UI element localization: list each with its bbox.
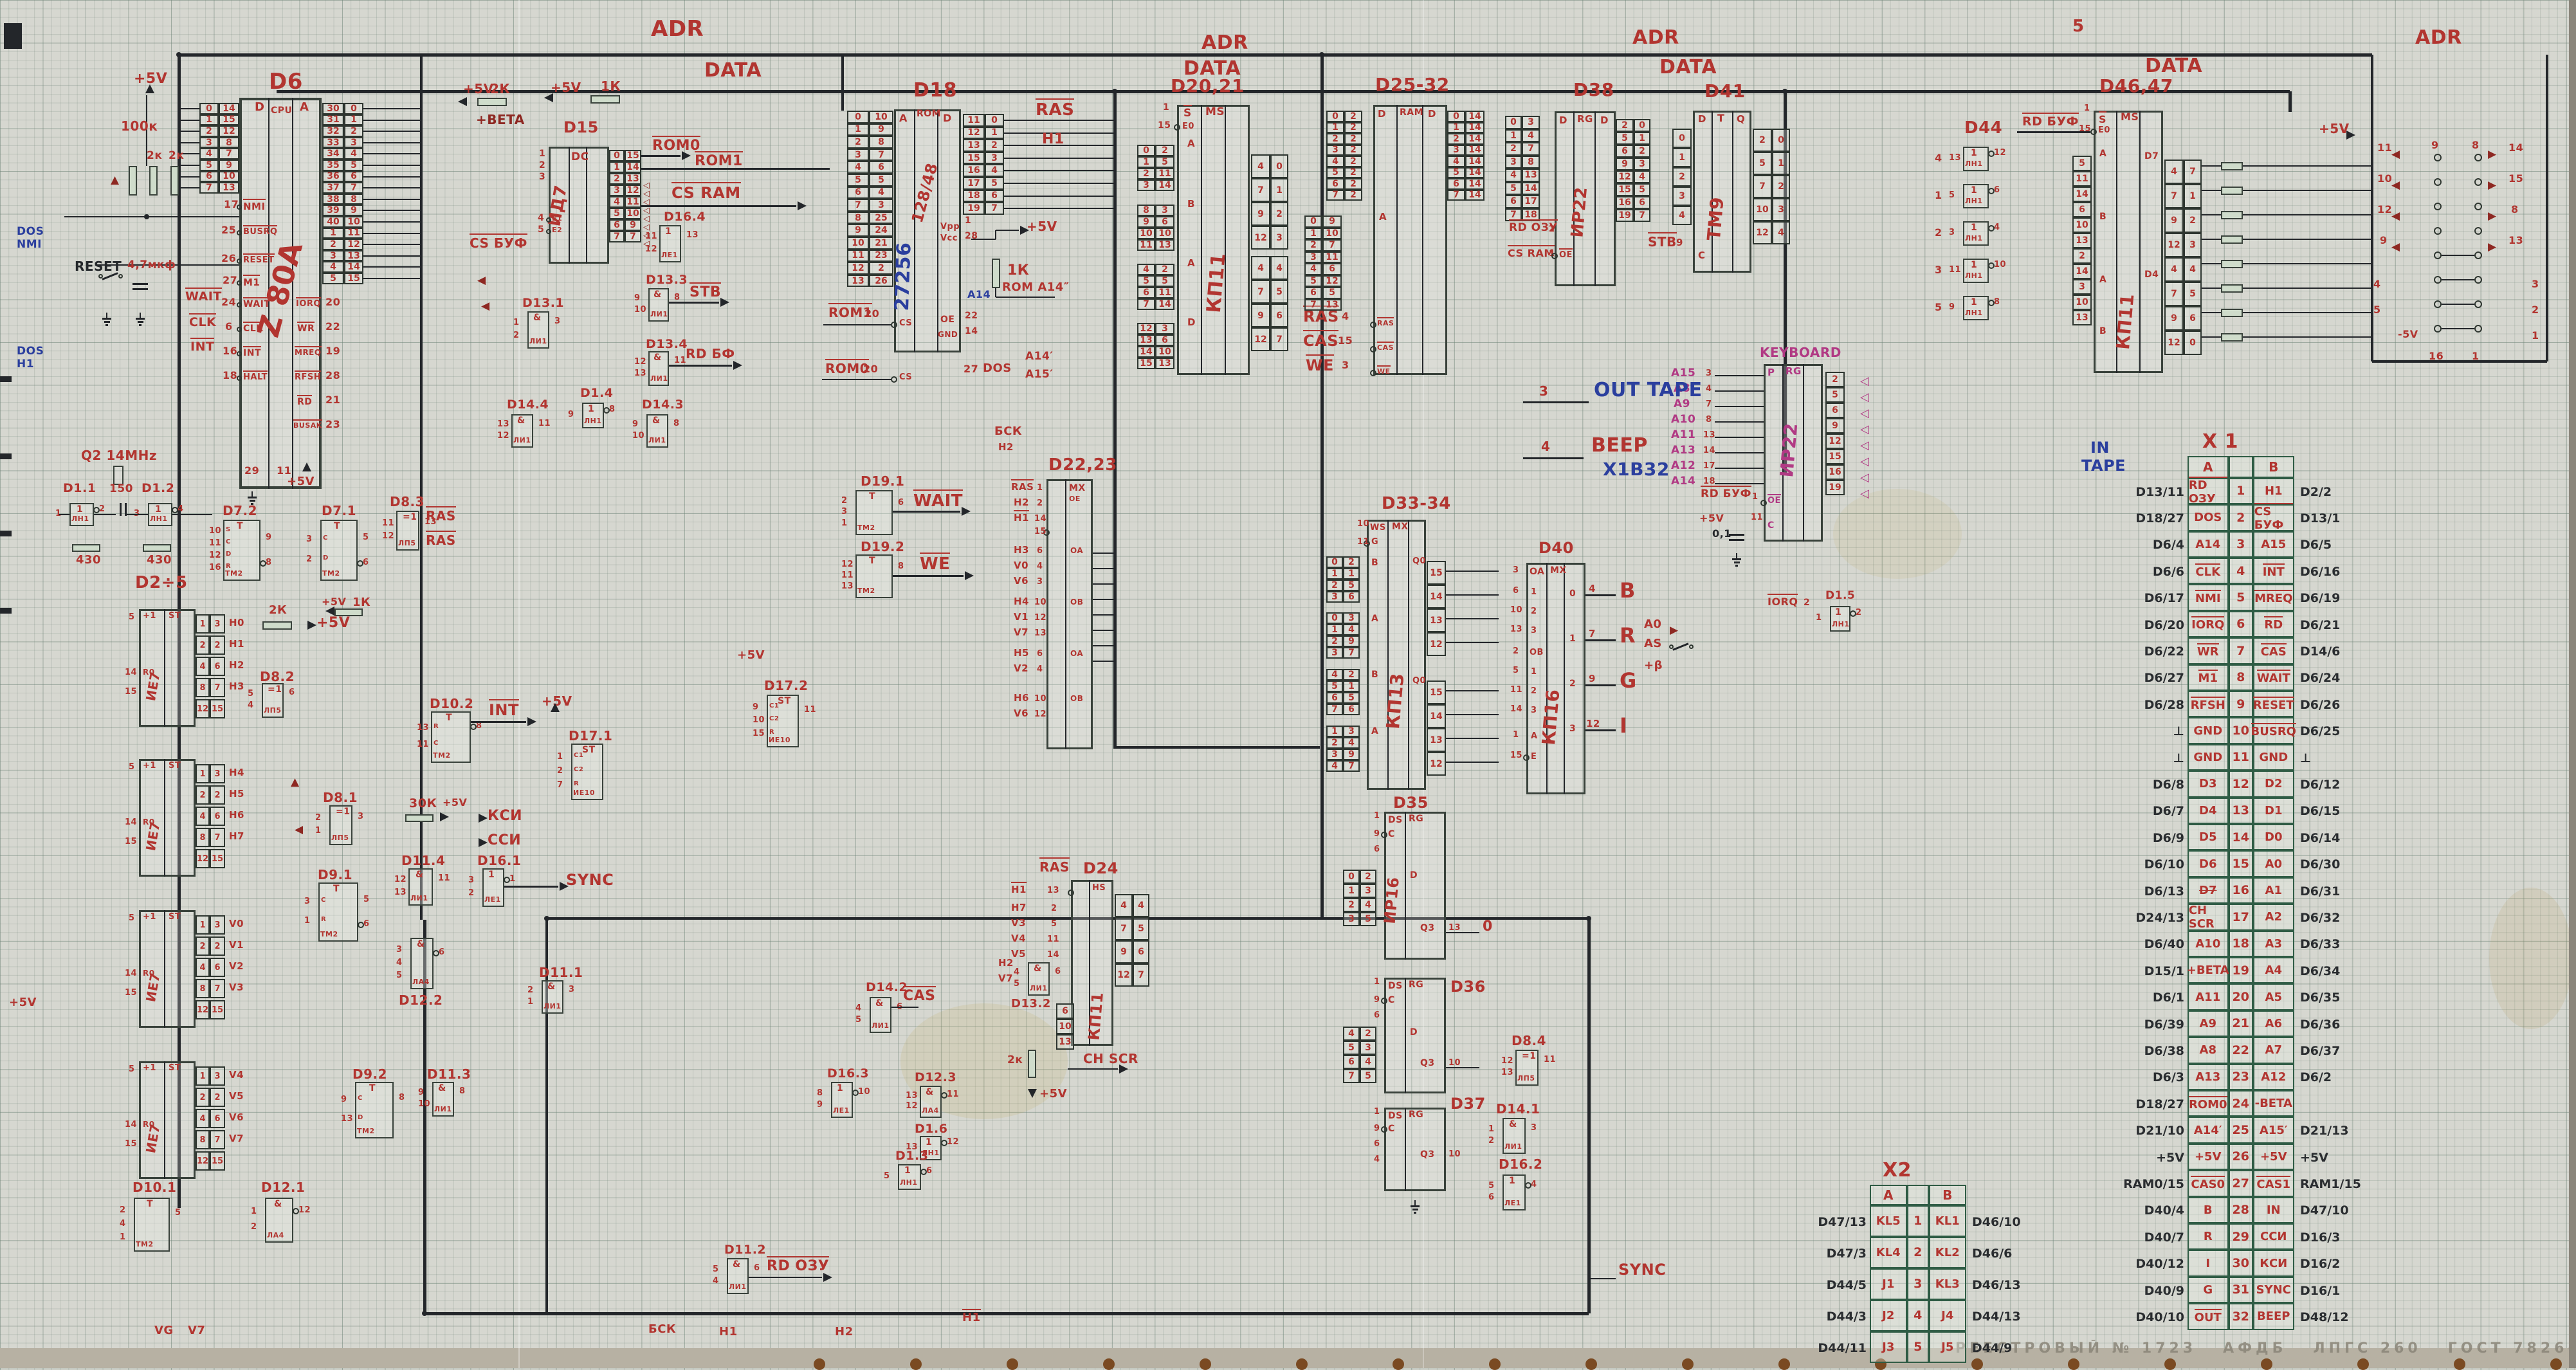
wire-segment: [64, 216, 239, 217]
pin-cell: 2: [1505, 142, 1522, 156]
connector-table-x1-ref-left: D18/27: [2128, 505, 2184, 531]
junction-dot: [1586, 916, 1591, 921]
arrowhead: [145, 84, 154, 93]
text-label: D8.4: [1512, 1034, 1546, 1047]
pin-cell: 12: [196, 699, 210, 718]
pin-cell: 5: [1326, 167, 1344, 179]
wire-segment: [1715, 406, 1764, 407]
pin-cell: 9: [1616, 158, 1634, 170]
wire-segment: [937, 109, 938, 352]
text-label: БСК: [648, 1324, 676, 1335]
pin-cell: 5: [1447, 167, 1465, 179]
pin-cell: 3: [1360, 884, 1376, 898]
pin-cell: 5: [847, 174, 869, 187]
gate-chip-type: ТМ2: [357, 1128, 375, 1135]
counter-output-signal: V6: [229, 1113, 244, 1122]
pin-cell: 14: [1155, 298, 1174, 310]
gate-input-pin: 12: [394, 875, 406, 884]
connector-table-x1-signal-a: R: [2188, 1223, 2229, 1250]
text-label: 6: [1374, 845, 1380, 854]
gate-output-pin: 8: [459, 1087, 466, 1095]
text-label: S: [1183, 108, 1192, 119]
gate-input-pin: 1: [841, 519, 848, 527]
text-label: ADR: [1201, 33, 1248, 53]
text-label: C: [1388, 996, 1395, 1005]
wire-segment: [1712, 111, 1713, 273]
text-label: E2: [552, 226, 562, 233]
gate-output-pin: 5: [175, 1209, 181, 1217]
pin-circle: [1381, 1126, 1387, 1133]
gate-output-pin: 11: [1544, 1055, 1556, 1064]
pin-cell: 1: [1505, 129, 1522, 143]
pin-cell: 6: [1155, 216, 1174, 228]
pin-cell: 15: [210, 1000, 225, 1019]
gate-output-pin: 3: [569, 985, 575, 994]
pin-cell: 16: [963, 164, 985, 177]
pin-cell: 2: [196, 635, 210, 655]
text-label: D1.3: [895, 1150, 928, 1162]
text-label: 28: [325, 370, 340, 381]
pin-cell: 15: [1825, 449, 1845, 464]
gate-symbol: &: [653, 353, 662, 362]
pin-circle: [1381, 832, 1387, 838]
counter-output-signal: V4: [229, 1070, 244, 1080]
arrowhead: [458, 97, 467, 106]
pin-cell: 1: [1326, 624, 1343, 635]
pin-cell: 0: [1326, 111, 1344, 122]
connector-table-x1-ref-right: D6/37: [2300, 1037, 2376, 1064]
text-label: 9: [1374, 830, 1380, 838]
connector-table-x1-pin: 32: [2229, 1303, 2253, 1329]
pin-cell: 2: [1360, 1027, 1376, 1041]
pin-circle: [1523, 754, 1530, 761]
wire-segment: [2288, 91, 2292, 112]
pin-cell: 17: [1522, 195, 1540, 208]
pin-cell: 3: [609, 185, 625, 196]
wire-segment: [1446, 642, 1499, 643]
wire-segment: [363, 221, 421, 223]
pin-cell: 1: [196, 915, 210, 935]
pin-cell: 2: [1344, 133, 1362, 145]
pin-cell: 12: [1251, 226, 1270, 250]
gate-chip-type: ЛИ1: [1504, 1143, 1522, 1150]
pin-cell: 11: [344, 228, 363, 239]
wire-segment: [363, 199, 421, 200]
gate-input-letter: C1: [769, 703, 779, 709]
text-label: Q2 14MHz: [81, 449, 157, 462]
text-label: D8.3: [390, 495, 425, 508]
gate-input-pin: 4: [396, 958, 403, 967]
wire-segment: [172, 514, 212, 515]
connector-table-x1-ref-right: D6/34: [2300, 958, 2376, 984]
pin-cell: 38: [322, 194, 344, 205]
pin-cell: 1: [196, 614, 210, 634]
gate-input-pin: 16: [209, 563, 221, 572]
arrowhead: [440, 812, 449, 821]
connector-table-x1-ref-right: D6/32: [2300, 904, 2376, 931]
gate-input-pin: 2: [315, 814, 322, 822]
resistor-symbol: [262, 621, 292, 630]
connector-table-x1-pin: 12: [2229, 771, 2253, 797]
counter-output-signal: Н5: [229, 789, 244, 799]
counter-output-signal: V3: [229, 983, 244, 992]
pin-cell: 14: [344, 261, 363, 273]
pin-cell: 4: [1343, 1027, 1360, 1041]
text-label: 4: [2373, 279, 2381, 289]
pin-cell: 0: [1343, 870, 1360, 884]
connector-table-x2-signal-b: J5: [1929, 1331, 1966, 1363]
wire-segment: [164, 759, 165, 877]
pin-cell: 4: [609, 196, 625, 208]
wire-segment: [179, 187, 199, 188]
pin-cell: 10: [1322, 228, 1342, 240]
text-label: 2: [1531, 687, 1537, 695]
wire-segment: [1715, 452, 1764, 453]
gate-symbol: 1: [1971, 298, 1977, 307]
text-label: +5V: [551, 81, 581, 94]
pin-cell: 21: [869, 237, 893, 250]
text-label: 1: [1163, 103, 1169, 112]
pin-cell: 5: [1155, 156, 1174, 168]
pin-cell: 4: [2184, 257, 2202, 282]
wire-segment: [2202, 190, 2221, 191]
text-label: D16.1: [477, 854, 521, 867]
text-label: 8: [2472, 140, 2480, 151]
pin-cell: 4: [2164, 160, 2184, 184]
connector-table-x2-signal-a: KL5: [1870, 1205, 1907, 1237]
text-label: Н1: [719, 1326, 738, 1338]
wire-segment: [996, 297, 1055, 298]
pin-cell: 5: [322, 273, 344, 284]
gate-chip-type: ТМ2: [320, 931, 338, 938]
pin-cell: 2: [1344, 190, 1362, 201]
gate-output-pin: 3: [554, 317, 561, 325]
gate-input-pin: 13: [497, 420, 509, 428]
paper-mark: [0, 608, 12, 614]
text-label: КП16: [1540, 688, 1563, 745]
wire-segment: [2243, 214, 2372, 215]
gate-input-pin: 1: [557, 753, 563, 761]
pin-cell: 6: [2072, 202, 2092, 217]
connector-table-x1-signal-b: ССИ: [2253, 1223, 2294, 1250]
pin-cell: 4: [1270, 256, 1288, 280]
resistor-symbol: [2221, 162, 2243, 170]
wire-segment: [363, 187, 421, 188]
gate-chip-type: ЛИ1: [648, 437, 666, 444]
connector-table-x1-pin: 7: [2229, 637, 2253, 664]
gate-chip-type: ЛИ1: [1030, 985, 1048, 992]
text-label: 4: [538, 214, 544, 223]
paper-mark: [0, 453, 12, 459]
pin-cell: 6: [609, 219, 625, 231]
gate-symbol: &: [517, 416, 525, 425]
pin-cell: 2: [1326, 737, 1343, 749]
text-label: 6: [225, 322, 233, 332]
text-label: A0: [1644, 619, 1661, 630]
schematic-sheet: РЕЕСТРОВЫЙ № 1723 АФДБ ЛПГС 260 ГОСТ 782…: [0, 0, 2576, 1368]
gate-symbol: 1: [1971, 149, 1977, 158]
gate-chip-type: ЛН1: [900, 1179, 918, 1186]
text-label: D38: [1573, 81, 1614, 100]
wire-segment: [1115, 746, 1320, 749]
connector-table-x2-ref-left: D47/13: [1815, 1206, 1867, 1238]
gate-input-letter: R: [769, 729, 774, 736]
pin-cell: 11: [625, 196, 641, 208]
pin-cell: 0: [1304, 215, 1322, 228]
gate-symbol: &: [733, 1260, 741, 1269]
text-label: +β: [1644, 660, 1663, 671]
resistor-symbol: [72, 544, 100, 552]
text-label: WAIT: [185, 291, 222, 303]
text-label: D40: [1539, 540, 1574, 556]
connector-table-x1-signal-a: DOS: [2188, 504, 2229, 531]
counter-pin: 14: [125, 668, 137, 677]
connector-table-x1-ref-right: D6/31: [2300, 878, 2376, 904]
gate-symbol: T: [147, 1200, 153, 1209]
pin-cell: 2: [1137, 168, 1155, 179]
text-label: ADR: [1632, 28, 1679, 48]
text-label: RESET: [243, 256, 275, 264]
text-label: BEEP: [1591, 436, 1648, 456]
gate-input-pin: 12: [1501, 1057, 1513, 1065]
text-label: D22,23: [1048, 457, 1117, 474]
counter-st: ST: [169, 1064, 181, 1072]
gate-input-pin: 12: [645, 245, 657, 253]
switch-contact: [118, 274, 123, 279]
pin-cell: 11: [1155, 168, 1174, 179]
text-label: OB: [1070, 695, 1083, 702]
text-label: 20: [325, 297, 340, 307]
connector-table-x1-pin: 1: [2229, 478, 2253, 504]
text-label: 9: [1374, 1124, 1380, 1133]
pin-cell: 15: [219, 114, 239, 126]
text-label: 15: [2508, 174, 2523, 184]
gate-input-pin: 7: [557, 781, 563, 789]
connector-table-x1-signal-a: A8: [2188, 1037, 2229, 1063]
pin-cell: 19: [1825, 480, 1845, 495]
pin-cell: 2: [1344, 178, 1362, 190]
text-label: D46,47: [2099, 77, 2173, 96]
text-label: D14.2: [866, 982, 908, 994]
gate-input-pin: 11: [382, 519, 394, 527]
text-label: 1: [965, 216, 971, 225]
text-label: КП11: [1205, 252, 1230, 314]
connector-table-x1-signal-b: A5: [2253, 983, 2294, 1010]
text-label: 3: [1513, 566, 1519, 574]
arrowhead: [479, 838, 488, 847]
pin-cell: 4: [1343, 737, 1360, 749]
text-label: D25-32: [1375, 76, 1450, 95]
connector-table-x1-pin: 18: [2229, 931, 2253, 957]
ground-stem: [140, 313, 141, 318]
gate-input-pin: 3: [841, 507, 848, 516]
wire-segment: [1004, 208, 1115, 209]
gate-symbol: =1: [403, 513, 417, 522]
capacitor-symbol: [132, 283, 148, 285]
text-label: NMI: [243, 202, 266, 212]
pin-cell: 4: [1360, 898, 1376, 912]
pin-cell: 10: [2072, 295, 2092, 310]
gate-input-pin: 2: [251, 1223, 257, 1231]
text-label: 100к: [121, 120, 158, 132]
wire-segment: [1446, 618, 1499, 619]
text-label: A: [1187, 259, 1195, 268]
connector-table-x1-signal-a: CLK: [2188, 558, 2229, 584]
gate-input-pin: 2: [527, 986, 534, 994]
wire-segment: [2243, 336, 2372, 338]
pin-cell: 7: [847, 199, 869, 212]
connector-table-x1-pin: 3: [2229, 531, 2253, 558]
text-label: Q3: [1420, 1059, 1435, 1068]
pin-cell: 16: [1616, 196, 1634, 209]
gate-input-pin: 3: [304, 897, 311, 906]
pin-cell: 0: [2184, 331, 2202, 355]
connector-table-x2-ref-right: D46/10: [1972, 1206, 2043, 1238]
pin-cell: 5: [2072, 156, 2092, 171]
pin-cell: 6: [1616, 145, 1634, 158]
text-label: БСК: [994, 426, 1022, 437]
gate-output-pin: 4: [1994, 223, 2000, 232]
text-label: 19: [325, 346, 340, 356]
pin-cell: 1: [1634, 132, 1650, 145]
text-label: P: [1768, 368, 1775, 378]
gate-symbol: T: [369, 1084, 376, 1093]
text-label: 11: [1357, 538, 1369, 546]
text-label: 1: [539, 149, 545, 158]
text-label: A: [1187, 139, 1195, 149]
pin-cell: 12: [1825, 434, 1845, 449]
text-label: D1.1: [63, 482, 96, 495]
text-label: D14.3: [642, 399, 684, 411]
pin-cell: 7: [2164, 184, 2184, 208]
pin-cell: 2: [985, 139, 1004, 152]
switch-contact: [1669, 644, 1674, 649]
text-label: D: [1600, 116, 1609, 125]
text-label: 9: [1374, 996, 1380, 1004]
pin-cell: 6: [1133, 940, 1149, 964]
pin-cell: 2: [210, 785, 225, 805]
text-label: 10: [1034, 598, 1046, 607]
text-label: 4: [1342, 311, 1349, 322]
pin-cell: 14: [1465, 133, 1484, 145]
text-label: V6: [1014, 709, 1028, 718]
pin-cell: 1: [1326, 568, 1343, 580]
gate-chip-type: ЛИ1: [729, 1283, 747, 1290]
ic-outline: [1046, 479, 1093, 749]
text-label: IN: [2090, 440, 2110, 455]
wire-segment: [1004, 196, 1115, 197]
connector-table-x1-ref-left: D18/27: [2128, 1091, 2184, 1117]
pin-circle: [2434, 300, 2442, 308]
binder-dot: [1296, 1358, 1308, 1370]
connector-table-x2-ref-right: D46/6: [1972, 1238, 2043, 1269]
text-label: MS: [2121, 112, 2139, 122]
text-label: D6: [269, 71, 303, 93]
connector-table-x2-ref-left: D44/11: [1815, 1332, 1867, 1364]
text-label: +5V: [316, 616, 350, 630]
connector-table-x1-ref-left: D6/3: [2128, 1064, 2184, 1091]
pin-cell: 13: [1155, 239, 1174, 251]
ground-stem: [1736, 553, 1737, 558]
text-label: OA: [1070, 547, 1083, 554]
ground-symbol: [104, 321, 110, 323]
text-label: DOS: [17, 226, 44, 237]
pin-circle: [2434, 178, 2442, 186]
text-label: D7: [2144, 152, 2159, 161]
gate-input-pin: 2: [1488, 1137, 1495, 1145]
wire-segment: [995, 288, 996, 297]
connector-table-x1-signal-a: A9: [2188, 1010, 2229, 1037]
pin-cell: 14: [1465, 178, 1484, 190]
gate-input-pin: 11: [209, 539, 221, 547]
pin-cell: 2: [210, 1088, 225, 1107]
connector-table-x1-signal-a: RFSH: [2188, 691, 2229, 717]
pin-cell: 5: [1360, 912, 1376, 926]
pin-cell: 4: [199, 148, 219, 160]
ground-symbol: [1412, 1209, 1418, 1210]
wire-segment: [1585, 729, 1616, 731]
text-label: 4: [1037, 562, 1043, 571]
wire-segment: [1093, 568, 1115, 569]
pin-cell: 5: [1753, 152, 1772, 175]
text-label: D19.2: [861, 540, 904, 553]
connector-table-x1-pin: 19: [2229, 957, 2253, 983]
diode-symbol: ▶: [2488, 211, 2497, 222]
pin-cell: 4: [1772, 221, 1790, 244]
pin-cell: 7: [1343, 760, 1360, 772]
pin-cell: 1: [847, 123, 869, 136]
text-label: D12.1: [261, 1181, 305, 1194]
counter-mode: +1: [143, 612, 156, 620]
pin-cell: 1: [1447, 122, 1465, 134]
pin-cell: 3: [1155, 205, 1174, 216]
pin-cell: 7: [1522, 142, 1540, 156]
gate-chip-type: ИЕ10: [769, 736, 790, 744]
gate-input-letter: D: [358, 1115, 363, 1121]
pin-cell: 13: [1155, 358, 1174, 369]
pin-cell: 2: [344, 125, 363, 137]
text-label: OB: [1070, 598, 1083, 606]
pin-cell: 6: [1825, 403, 1845, 418]
counter-pin: 5: [129, 763, 135, 771]
connector-table-x1-ref-left: ⊥: [2128, 745, 2184, 771]
pin-cell: 0: [1326, 612, 1343, 624]
wire-segment: [2202, 288, 2221, 289]
text-label: RAS: [426, 509, 456, 522]
text-label: CLK: [243, 324, 264, 333]
text-label: D17.1: [569, 729, 612, 742]
text-label: WR: [297, 324, 315, 333]
text-label: ADR: [2415, 28, 2462, 48]
text-label: А13: [1671, 445, 1695, 456]
text-label: 3: [1531, 706, 1537, 715]
wire-segment: [179, 176, 199, 178]
pin-cell: 2: [199, 125, 219, 137]
pin-cell: 7: [1343, 647, 1360, 659]
gate-input-pin: 12: [841, 560, 854, 569]
binder-dot: [1585, 1358, 1597, 1370]
junction-dot: [144, 214, 149, 219]
pin-cell: 9: [344, 205, 363, 216]
pin-cell: 10: [847, 237, 869, 250]
text-label: 12: [2377, 205, 2392, 215]
wire-segment: [1320, 55, 1324, 918]
text-label: 430: [76, 554, 101, 566]
pin-cell: 18: [963, 190, 985, 203]
pin-cell: 6: [847, 187, 869, 199]
inverter-circle: [293, 1208, 299, 1214]
pin-cell: 3: [1447, 145, 1465, 156]
